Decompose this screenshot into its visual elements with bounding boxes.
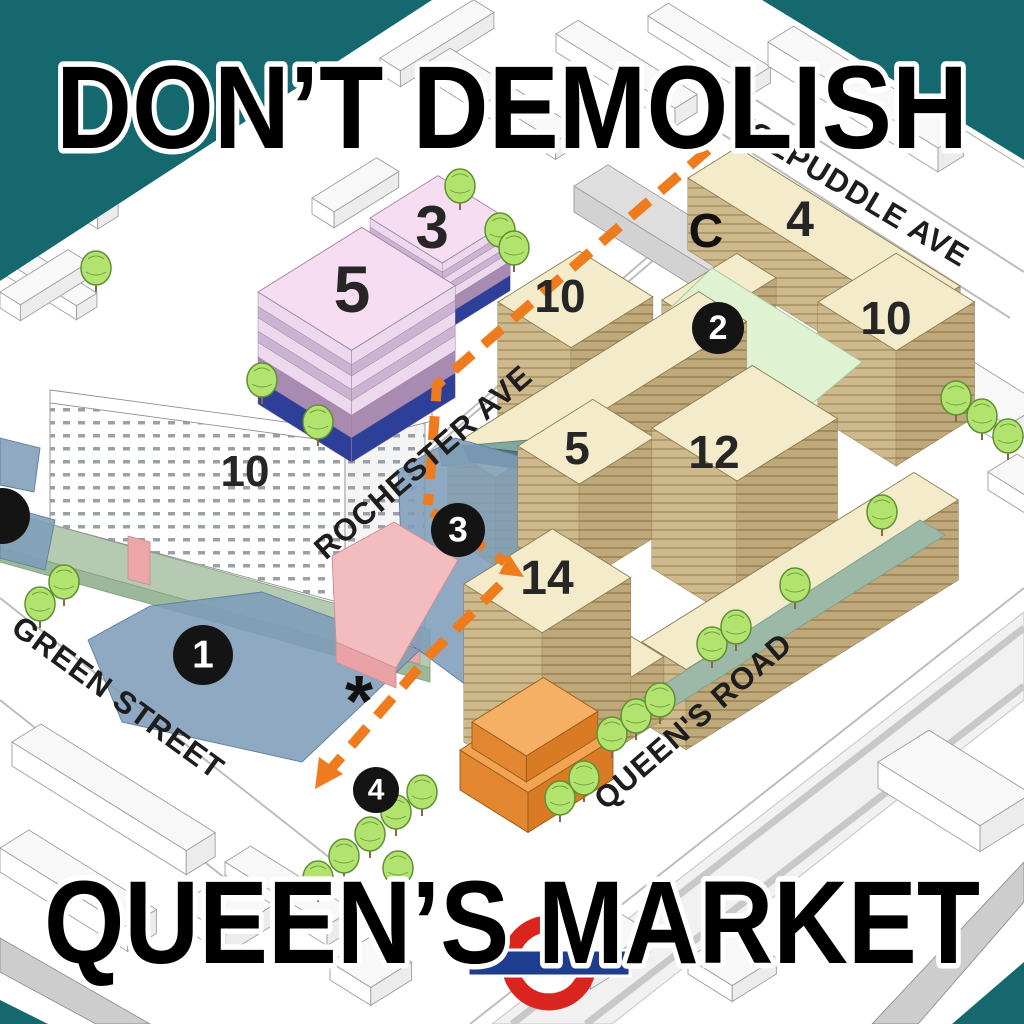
building-label-tan-10-west: 10	[534, 270, 585, 322]
marker-2: 2	[692, 302, 744, 354]
building-label-tan-12: 12	[688, 426, 739, 478]
tower-pink-section	[128, 536, 150, 585]
campaign-poster: ROCHESTER AVETOLPUDDLE AVEGREEN STREETQU…	[0, 0, 1024, 1024]
building-label-pink-3: 3	[415, 194, 448, 261]
marker-1: 1	[173, 625, 233, 685]
building-label-tan-14: 14	[520, 552, 574, 605]
poster-title-top: DON’T DEMOLISH	[56, 42, 968, 174]
annotation-label-c: C	[689, 205, 724, 258]
annotation-asterisk: *	[345, 662, 373, 742]
marker-4: 4	[353, 767, 399, 813]
marker-3-number: 3	[448, 510, 468, 549]
market-roof	[0, 438, 40, 492]
building-label-pink-5: 5	[334, 252, 371, 326]
building-label-tan-5: 5	[564, 422, 590, 474]
marker-2-number: 2	[709, 309, 728, 347]
marker-3: 3	[431, 503, 485, 557]
building-label-tan-10-east: 10	[860, 292, 911, 344]
poster-title-bottom: QUEEN’S MARKET	[44, 857, 980, 989]
marker-4-number: 4	[368, 774, 385, 807]
building-label-tan-4: 4	[786, 191, 814, 247]
marker-1-number: 1	[192, 634, 214, 677]
building-label-white-10: 10	[221, 447, 270, 496]
map-illustration: ROCHESTER AVETOLPUDDLE AVEGREEN STREETQU…	[0, 0, 1024, 1024]
